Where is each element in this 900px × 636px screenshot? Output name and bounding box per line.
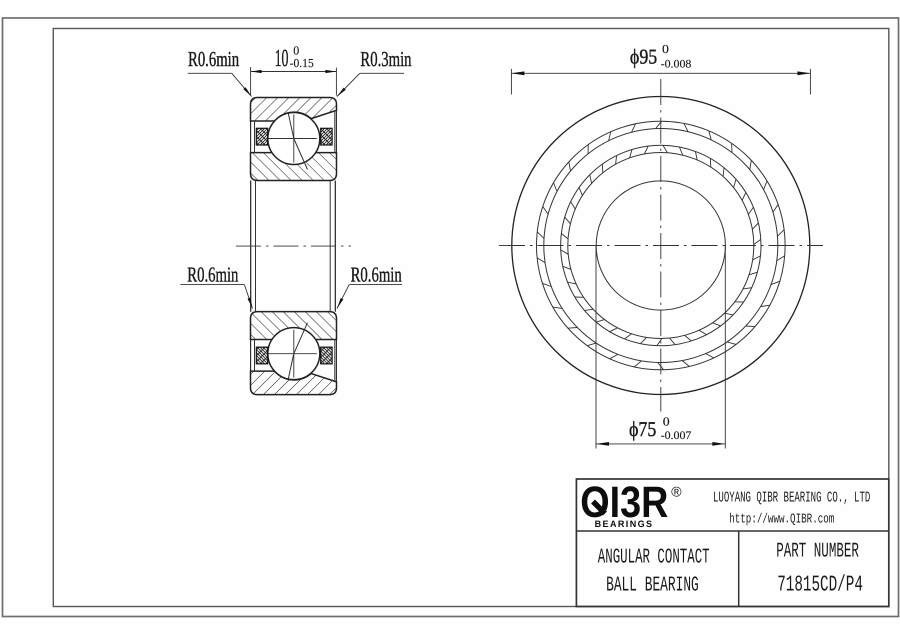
svg-text:BALL BEARING: BALL BEARING [606,573,699,597]
svg-text:R0.6min: R0.6min [187,264,238,287]
svg-text:0: 0 [662,43,669,57]
svg-text:-0.15: -0.15 [290,57,314,70]
svg-text:®: ® [671,484,682,500]
svg-text:ϕ75: ϕ75 [629,419,656,441]
svg-text:LUOYANG QIBR BEARING CO., LTD: LUOYANG QIBR BEARING CO., LTD [713,491,870,508]
svg-text:PART NUMBER: PART NUMBER [776,540,859,564]
svg-text:0: 0 [293,45,299,59]
svg-text:-0.007: -0.007 [661,430,692,443]
svg-text:71815CD/P4: 71815CD/P4 [777,573,863,599]
svg-text:-0.008: -0.008 [661,58,692,71]
svg-text:R0.3min: R0.3min [360,49,411,72]
svg-text:ϕ95: ϕ95 [630,47,657,69]
svg-text:R0.6min: R0.6min [188,49,239,72]
svg-text:BEARINGS: BEARINGS [595,519,654,529]
svg-text:http://www.QIBR.com: http://www.QIBR.com [729,512,834,528]
svg-text:10: 10 [275,45,289,72]
svg-text:ANGULAR CONTACT: ANGULAR CONTACT [598,546,710,570]
svg-text:R0.6min: R0.6min [351,264,402,287]
svg-text:0: 0 [663,415,670,429]
